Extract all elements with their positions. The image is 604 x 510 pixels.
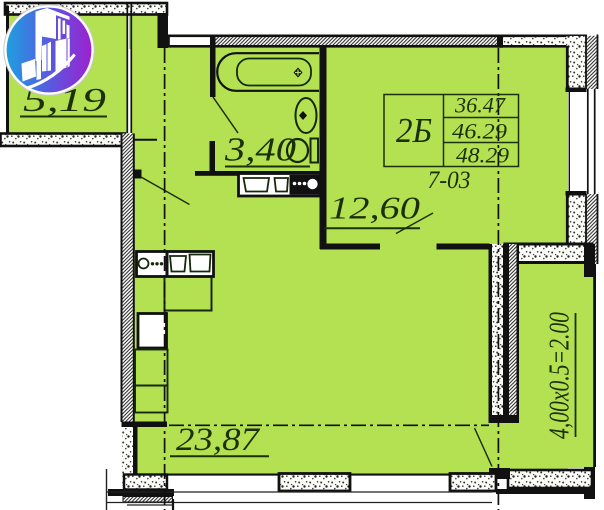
svg-text:4,00x0.5=2.00: 4,00x0.5=2.00 [545,312,576,439]
svg-text:7-03: 7-03 [428,167,471,194]
svg-text:2Б: 2Б [396,111,432,150]
svg-text:36.47: 36.47 [454,93,506,118]
svg-text:46.29: 46.29 [452,119,507,144]
svg-text:48.29: 48.29 [456,143,509,168]
svg-text:12,60: 12,60 [329,190,420,226]
svg-text:3,40: 3,40 [224,132,296,169]
svg-text:23,87: 23,87 [176,422,261,458]
